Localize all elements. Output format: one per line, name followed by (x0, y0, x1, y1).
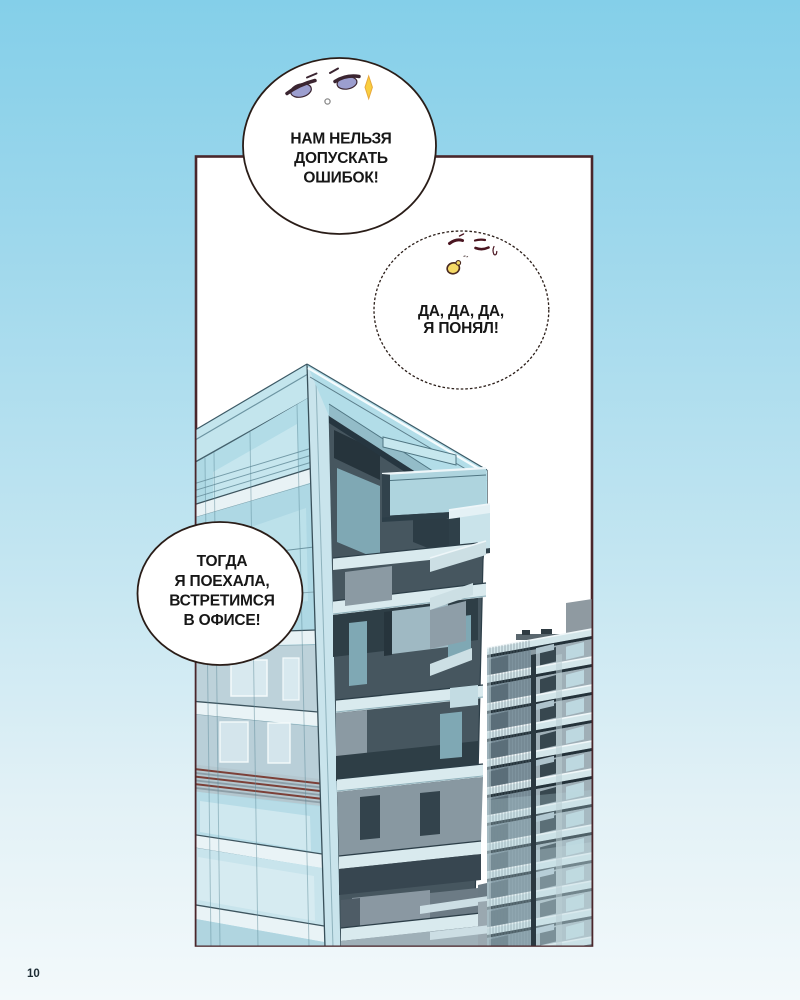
svg-text:В ОФИСЕ!: В ОФИСЕ! (183, 612, 260, 629)
svg-text:ДА, ДА, ДА,: ДА, ДА, ДА, (418, 303, 504, 320)
svg-text:НАМ НЕЛЬЗЯ: НАМ НЕЛЬЗЯ (290, 131, 391, 148)
svg-text:Я ПОНЯЛ!: Я ПОНЯЛ! (423, 320, 498, 337)
svg-text:ТОГДА: ТОГДА (197, 553, 248, 570)
svg-text:10: 10 (27, 968, 40, 980)
svg-text:ОШИБОК!: ОШИБОК! (303, 170, 378, 187)
svg-text:ВСТРЕТИМСЯ: ВСТРЕТИМСЯ (169, 593, 274, 610)
svg-text:Я ПОЕХАЛА,: Я ПОЕХАЛА, (174, 573, 269, 590)
svg-text:ДОПУСКАТЬ: ДОПУСКАТЬ (294, 150, 388, 167)
